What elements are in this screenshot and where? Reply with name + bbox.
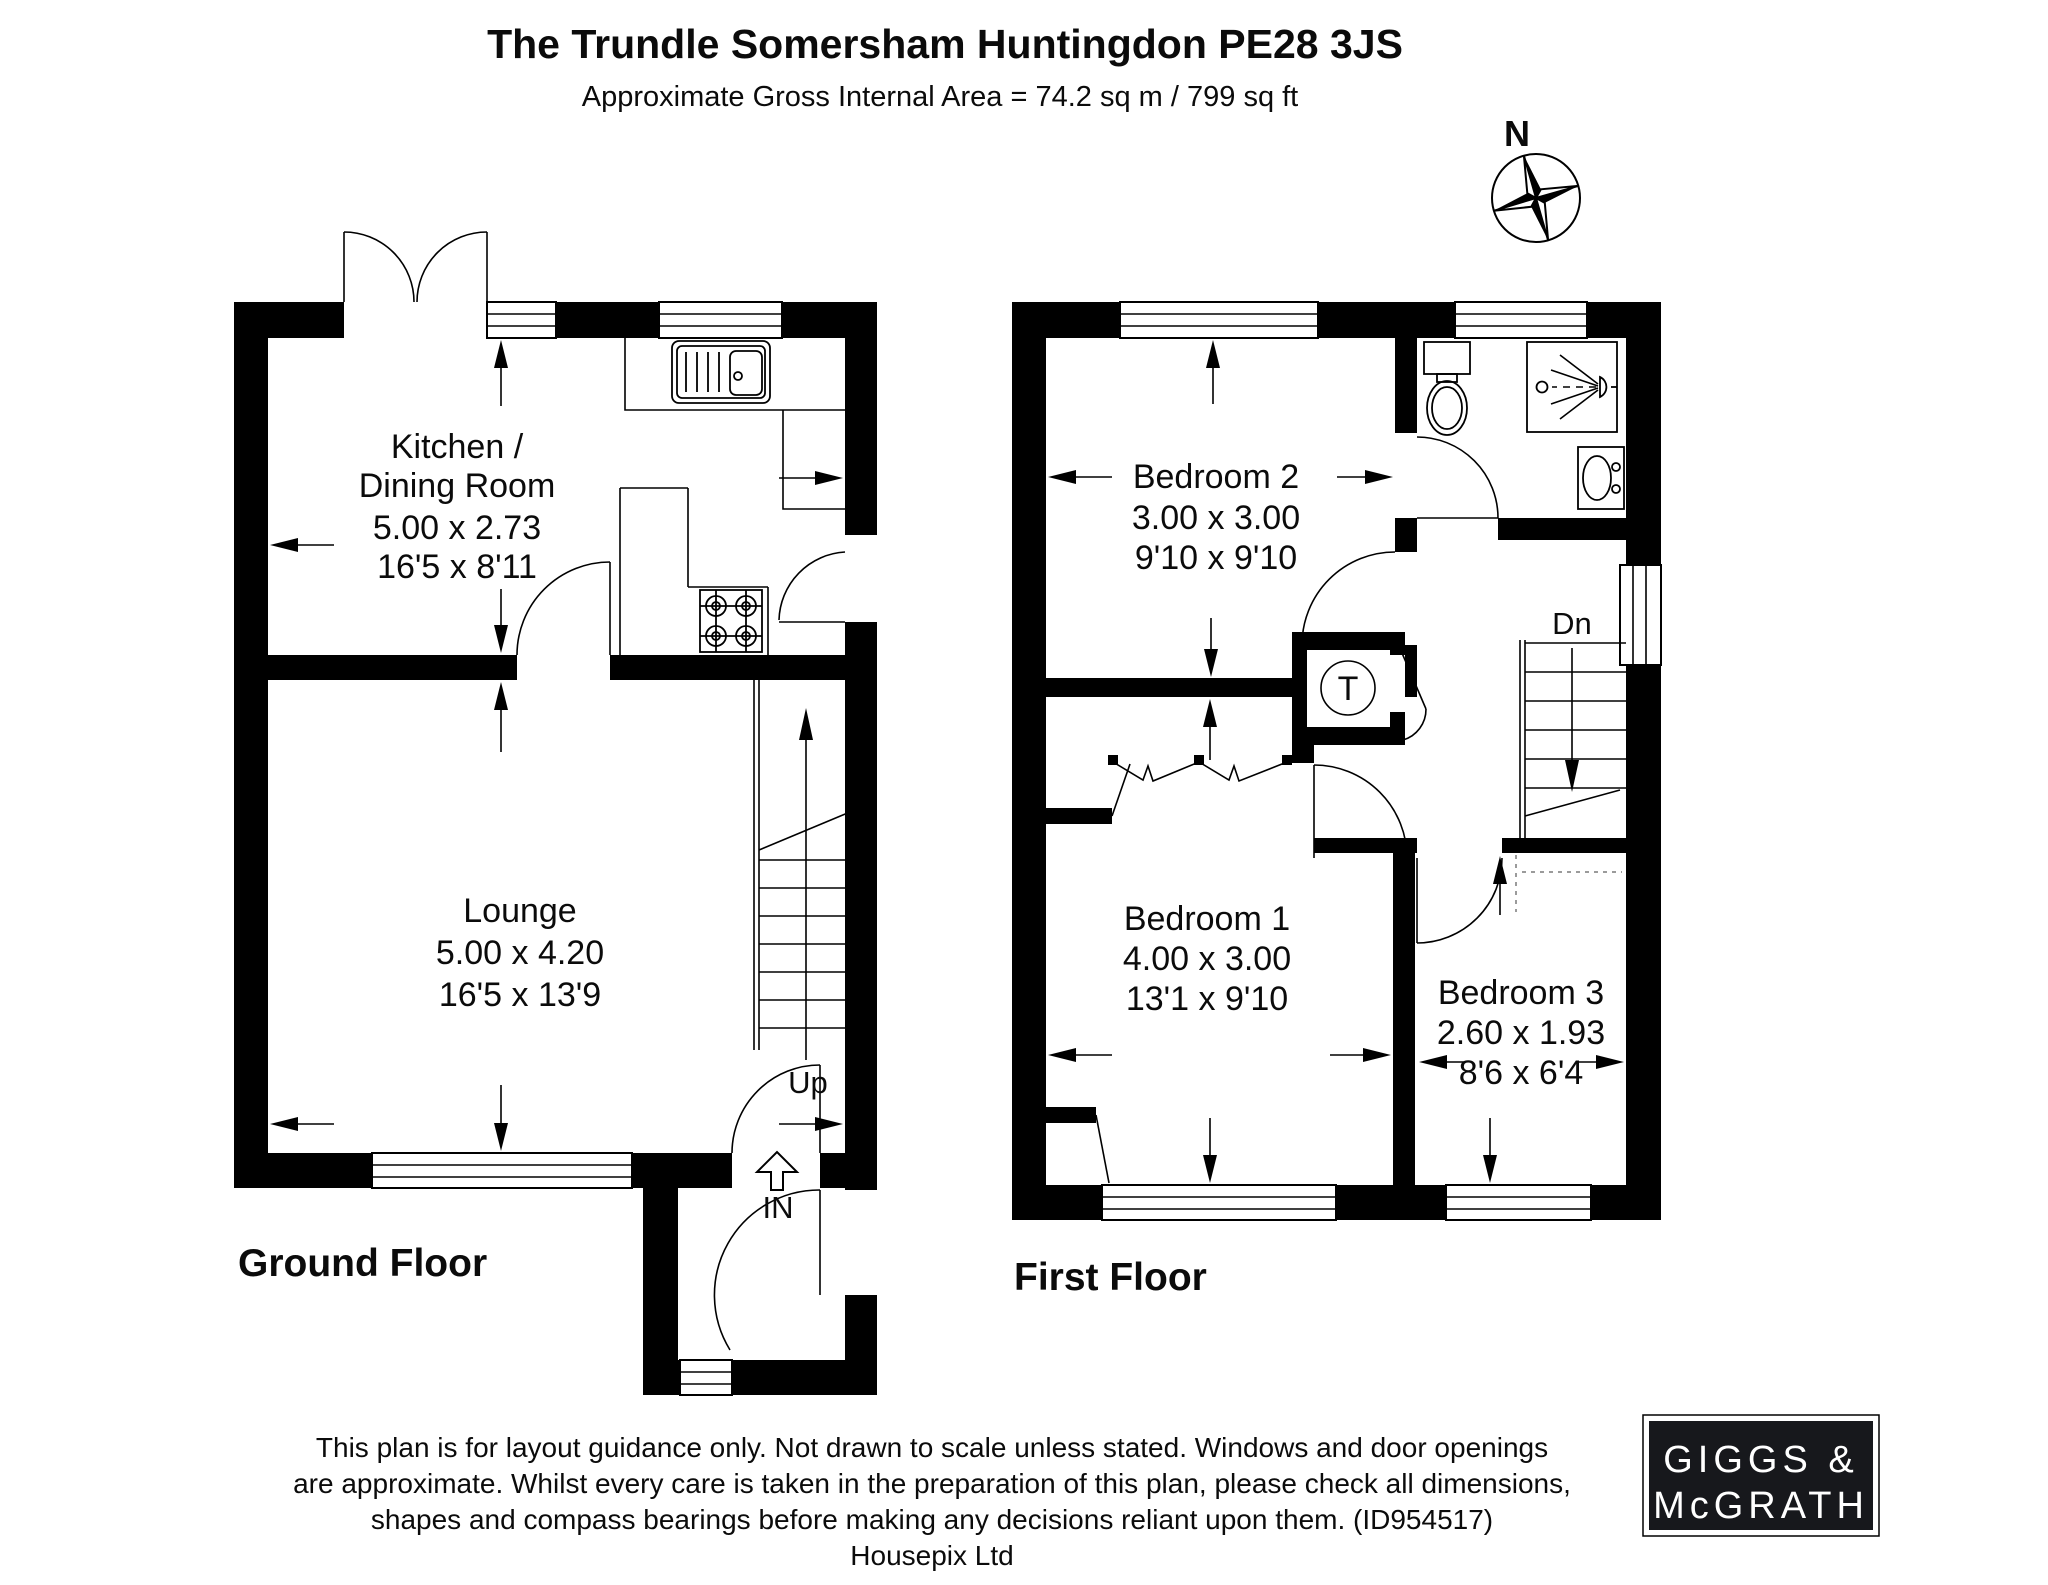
bedroom1-size-imperial: 13'1 x 9'10 xyxy=(1126,980,1288,1018)
shower-icon xyxy=(1527,342,1617,432)
floorplan-page: The Trundle Somersham Huntingdon PE28 3J… xyxy=(0,0,2048,1585)
bedroom2-name: Bedroom 2 xyxy=(1133,458,1299,496)
stairs-up-icon: Up xyxy=(754,680,850,1100)
kitchen-counter xyxy=(620,338,845,655)
compass-north-label: N xyxy=(1504,113,1530,154)
bedroom2-door xyxy=(1302,552,1395,645)
kitchen-hall-door xyxy=(779,552,845,622)
entrance-in-label: IN xyxy=(763,1190,794,1225)
ground-floor-label: Ground Floor xyxy=(238,1242,487,1285)
first-floor-plan: T xyxy=(1012,302,1661,1299)
lounge-size-imperial: 16'5 x 13'9 xyxy=(439,976,601,1014)
bedroom1-label: Bedroom 1 4.00 x 3.00 13'1 x 9'10 xyxy=(1123,900,1291,1018)
kitchen-label: Kitchen / Dining Room 5.00 x 2.73 16'5 x… xyxy=(359,428,556,586)
bedroom2-window xyxy=(1120,302,1318,338)
toilet-icon xyxy=(1424,342,1470,435)
hob-icon xyxy=(700,590,762,652)
bathroom-window xyxy=(1455,302,1587,338)
french-doors-icon xyxy=(344,232,487,302)
bedroom3-label: Bedroom 3 2.60 x 1.93 8'6 x 6'4 xyxy=(1437,974,1605,1092)
kitchen-size-imperial: 16'5 x 8'11 xyxy=(377,548,537,586)
floorplan-drawing: The Trundle Somersham Huntingdon PE28 3J… xyxy=(0,0,2048,1585)
page-subtitle: Approximate Gross Internal Area = 74.2 s… xyxy=(582,81,1299,113)
bedroom1-alcove-door xyxy=(1096,1115,1109,1183)
wardrobe-icon xyxy=(1108,755,1292,816)
compass-icon: N xyxy=(1492,113,1580,242)
bedroom2-size-metric: 3.00 x 3.00 xyxy=(1132,499,1300,537)
bedroom3-window xyxy=(1446,1185,1591,1220)
lounge-size-metric: 5.00 x 4.20 xyxy=(436,934,604,972)
logo-line2: McGRATH xyxy=(1653,1485,1869,1527)
bedroom1-name: Bedroom 1 xyxy=(1124,900,1290,938)
logo-line1: GIGGS & xyxy=(1663,1439,1858,1481)
kitchen-window-right xyxy=(659,302,782,338)
lounge-window xyxy=(372,1153,632,1188)
ground-floor-plan: Up IN Kitchen / Dining Room 5.00 x 2.73 … xyxy=(234,232,877,1395)
bedroom3-size-metric: 2.60 x 1.93 xyxy=(1437,1014,1605,1052)
ground-floor-walls xyxy=(234,302,877,1395)
lounge-label: Lounge 5.00 x 4.20 16'5 x 13'9 xyxy=(436,892,604,1014)
bathroom-door xyxy=(1417,437,1498,518)
kitchen-name-line2: Dining Room xyxy=(359,467,556,505)
bedroom1-window xyxy=(1102,1185,1336,1220)
bedroom3-name: Bedroom 3 xyxy=(1438,974,1604,1012)
disclaimer-line1: This plan is for layout guidance only. N… xyxy=(316,1432,1548,1463)
stairs-down-icon: Dn xyxy=(1516,606,1626,912)
landing-window xyxy=(1620,565,1661,665)
disclaimer-line3: shapes and compass bearings before makin… xyxy=(371,1504,1493,1535)
kitchen-sink-icon xyxy=(672,341,770,403)
bedroom2-size-imperial: 9'10 x 9'10 xyxy=(1135,539,1297,577)
bedroom2-label: Bedroom 2 3.00 x 3.00 9'10 x 9'10 xyxy=(1132,458,1300,577)
first-floor-label: First Floor xyxy=(1014,1256,1207,1299)
agency-logo: GIGGS & McGRATH xyxy=(1643,1415,1879,1536)
stairs-down-label: Dn xyxy=(1552,606,1592,641)
disclaimer-line2: are approximate. Whilst every care is ta… xyxy=(293,1468,1571,1499)
porch-window xyxy=(680,1360,732,1395)
stairs-up-label: Up xyxy=(788,1065,828,1100)
tank-label: T xyxy=(1338,670,1359,708)
bedroom3-size-imperial: 8'6 x 6'4 xyxy=(1459,1054,1584,1092)
page-title: The Trundle Somersham Huntingdon PE28 3J… xyxy=(487,21,1403,67)
kitchen-size-metric: 5.00 x 2.73 xyxy=(373,509,541,547)
footer-disclaimer: This plan is for layout guidance only. N… xyxy=(293,1432,1571,1571)
lounge-name: Lounge xyxy=(463,892,576,930)
credit-line: Housepix Ltd xyxy=(850,1540,1013,1571)
kitchen-window-left xyxy=(487,302,556,338)
kitchen-name-line1: Kitchen / xyxy=(391,428,524,466)
bedroom1-size-metric: 4.00 x 3.00 xyxy=(1123,940,1291,978)
bedroom3-door xyxy=(1417,858,1502,943)
basin-icon xyxy=(1578,447,1624,509)
entrance-in-arrow-icon: IN xyxy=(757,1152,797,1225)
